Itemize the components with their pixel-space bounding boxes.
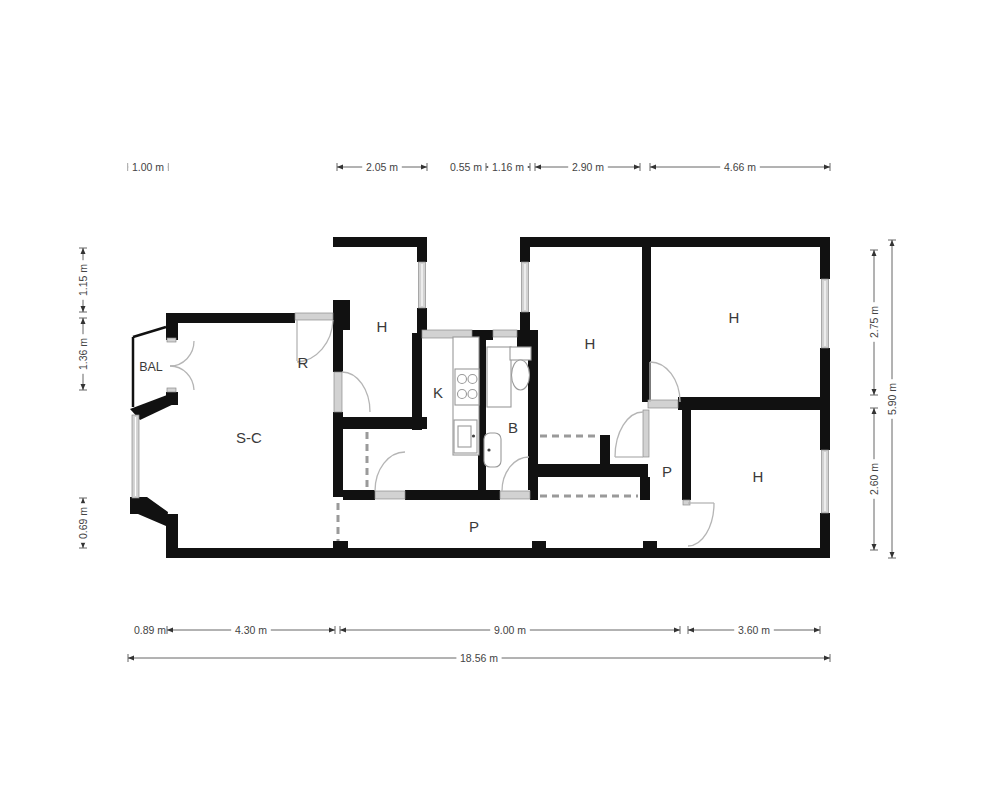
room-label-p-corridor: P [469, 518, 479, 535]
dimension-bot-1: 0.89 m [130, 624, 170, 637]
room-label-k: K [433, 384, 443, 401]
dimension-label-bot-1: 0.89 m [134, 624, 166, 636]
dimension-top-1: 1.00 m [128, 161, 168, 174]
room-label-bal: BAL [139, 360, 163, 374]
shower-icon [487, 347, 511, 407]
dimension-label-left-3: 0.69 m [77, 507, 89, 539]
stove-icon [455, 369, 479, 405]
dimension-bot-2: 4.30 m [167, 624, 335, 637]
dimension-label-top-5: 2.90 m [572, 161, 604, 173]
dimension-label-total: 18.56 m [460, 652, 498, 664]
dimension-label-bot-3: 9.00 m [494, 624, 526, 636]
dimension-label-top-2: 2.05 m [366, 161, 398, 173]
dimension-label-left-1: 1.15 m [77, 264, 89, 296]
dimension-right-3: 5.90 m [886, 240, 899, 558]
dimension-left-1: 1.15 m [77, 248, 90, 312]
dimension-bot-4: 3.60 m [688, 624, 820, 637]
dimension-label-top-6: 4.66 m [724, 161, 756, 173]
dimension-left-2: 1.36 m [77, 318, 90, 390]
dimension-label-top-4: 1.16 m [492, 161, 524, 173]
dimension-label-right-2: 2.60 m [868, 463, 880, 495]
dimension-label-bot-4: 3.60 m [738, 624, 770, 636]
room-label-h-bottom: H [753, 468, 764, 485]
dimension-top-6: 4.66 m [650, 161, 830, 174]
dimension-top-3: 0.55 m [446, 161, 486, 174]
dimension-left-3: 0.69 m [77, 498, 90, 548]
walls-layer [130, 237, 830, 558]
floorplan-svg: BALS-CRHKBHHHPP 1.00 m2.05 m0.55 m1.16 m… [0, 0, 1000, 800]
room-label-r: R [298, 354, 309, 371]
kitchen-sink-icon [454, 420, 477, 453]
dimension-top-2: 2.05 m [337, 161, 427, 174]
toilet-icon [510, 347, 531, 390]
room-labels-layer: BALS-CRHKBHHHPP [139, 309, 763, 535]
dimension-label-bot-2: 4.30 m [235, 624, 267, 636]
dimension-right-1: 2.75 m [868, 250, 881, 395]
dimension-total: 18.56 m [128, 652, 830, 665]
room-label-b: B [508, 419, 518, 436]
fixtures-layer [453, 337, 531, 467]
room-label-h-top-left: H [377, 318, 388, 335]
dimension-label-right-1: 2.75 m [868, 306, 880, 338]
room-label-p-lobby: P [662, 463, 672, 480]
dimension-top-4: 1.16 m [486, 161, 530, 174]
dimension-label-left-2: 1.36 m [77, 338, 89, 370]
room-label-sc: S-C [236, 429, 262, 446]
dimension-right-2: 2.60 m [868, 408, 881, 550]
bathroom-sink-icon [484, 433, 501, 467]
dimension-bot-3: 9.00 m [340, 624, 680, 637]
dimension-top-5: 2.90 m [535, 161, 640, 174]
dimension-label-right-3: 5.90 m [886, 383, 898, 415]
floorplan-page: BALS-CRHKBHHHPP 1.00 m2.05 m0.55 m1.16 m… [0, 0, 1000, 800]
dimensions-layer: 1.00 m2.05 m0.55 m1.16 m2.90 m4.66 m0.89… [77, 161, 899, 665]
room-label-h-top-right: H [729, 309, 740, 326]
room-label-h-middle: H [585, 335, 596, 352]
dimension-label-top-3: 0.55 m [450, 161, 482, 173]
dimension-label-top-1: 1.00 m [132, 161, 164, 173]
